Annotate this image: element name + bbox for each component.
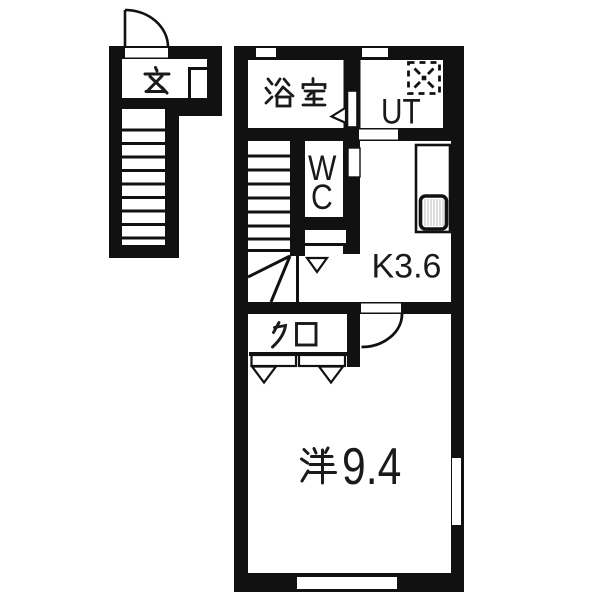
svg-text:9.4: 9.4 <box>342 438 401 496</box>
svg-text:K3.6: K3.6 <box>372 248 442 286</box>
svg-text:UT: UT <box>381 91 421 131</box>
svg-text:C: C <box>311 177 333 217</box>
